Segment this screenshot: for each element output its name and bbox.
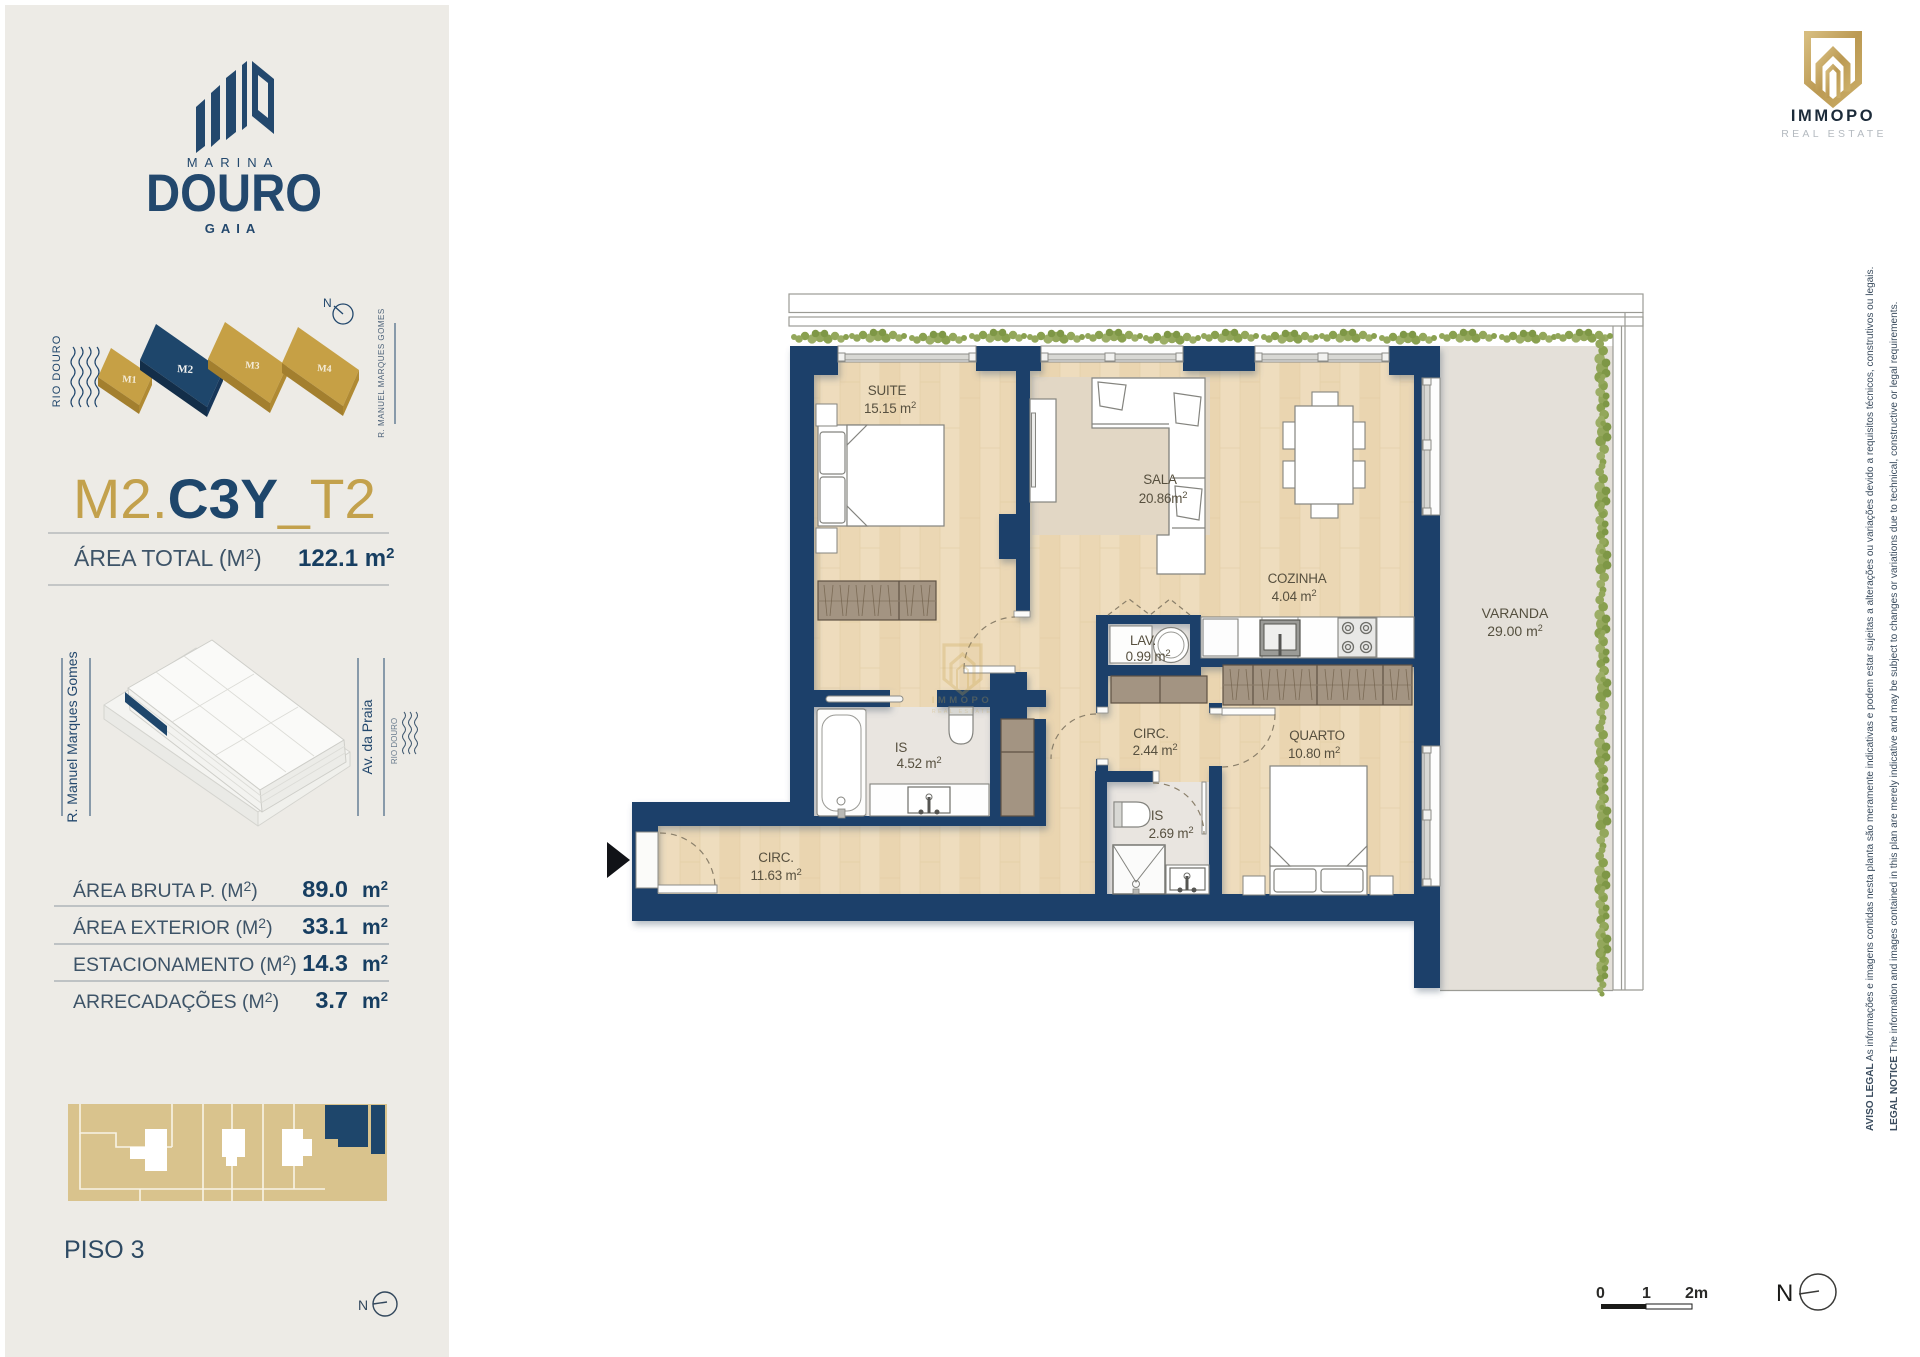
svg-text:11.63 m2: 11.63 m2 <box>750 867 801 883</box>
svg-text:QUARTO: QUARTO <box>1289 728 1345 743</box>
svg-text:4.04 m2: 4.04 m2 <box>1272 588 1317 604</box>
svg-text:3.7: 3.7 <box>315 987 348 1013</box>
svg-text:m2: m2 <box>362 915 388 939</box>
svg-text:M2: M2 <box>177 363 194 376</box>
svg-text:N: N <box>1776 1280 1793 1307</box>
svg-text:1: 1 <box>1642 1285 1651 1302</box>
svg-text:2.69 m2: 2.69 m2 <box>1149 825 1194 841</box>
svg-text:N: N <box>358 1297 368 1313</box>
svg-text:ESTACIONAMENTO (M2): ESTACIONAMENTO (M2) <box>73 952 297 976</box>
svg-text:m2: m2 <box>362 952 388 976</box>
svg-text:R. MANUEL MARQUES GOMES: R. MANUEL MARQUES GOMES <box>377 308 386 437</box>
svg-text:89.0: 89.0 <box>302 876 348 902</box>
svg-text:RIO DOURO: RIO DOURO <box>390 718 399 764</box>
svg-text:SALA: SALA <box>1143 472 1177 487</box>
svg-text:GAIA: GAIA <box>205 221 262 236</box>
svg-text:IS: IS <box>895 740 908 755</box>
svg-text:CIRC.: CIRC. <box>758 850 793 865</box>
svg-text:R. Manuel Marques Gomes: R. Manuel Marques Gomes <box>64 651 80 822</box>
svg-text:COZINHA: COZINHA <box>1268 571 1327 586</box>
svg-text:122.1 m2: 122.1 m2 <box>298 545 394 572</box>
svg-text:REAL ESTATE: REAL ESTATE <box>1781 128 1887 140</box>
svg-text:VARANDA: VARANDA <box>1482 605 1549 621</box>
svg-text:Av. da Praia: Av. da Praia <box>359 699 375 774</box>
svg-text:m2: m2 <box>362 878 388 902</box>
svg-text:14.3: 14.3 <box>302 950 348 976</box>
svg-text:0: 0 <box>1596 1285 1605 1302</box>
svg-text:2.44 m2: 2.44 m2 <box>1133 742 1178 758</box>
svg-text:10.80 m2: 10.80 m2 <box>1288 745 1340 761</box>
svg-text:ÁREA BRUTA P. (M2): ÁREA BRUTA P. (M2) <box>73 878 258 902</box>
svg-text:CIRC.: CIRC. <box>1133 726 1168 741</box>
svg-text:15.15 m2: 15.15 m2 <box>864 400 916 416</box>
svg-text:LAV.: LAV. <box>1130 633 1156 648</box>
svg-text:M3: M3 <box>245 360 260 372</box>
svg-text:IMMOPO: IMMOPO <box>1791 107 1875 125</box>
svg-text:29.00 m2: 29.00 m2 <box>1487 623 1543 639</box>
svg-text:m2: m2 <box>362 989 388 1013</box>
svg-text:4.52 m2: 4.52 m2 <box>897 755 942 771</box>
svg-text:PISO 3: PISO 3 <box>64 1236 145 1264</box>
svg-text:0.99 m2: 0.99 m2 <box>1126 648 1171 664</box>
svg-text:M1: M1 <box>122 374 137 386</box>
svg-text:IS: IS <box>1151 808 1164 823</box>
svg-text:M2.C3Y_T2: M2.C3Y_T2 <box>73 467 376 530</box>
svg-text:20.86m2: 20.86m2 <box>1139 490 1188 506</box>
svg-text:RIO DOURO: RIO DOURO <box>51 335 63 408</box>
svg-text:M4: M4 <box>317 363 332 375</box>
svg-text:REAL ESTATE: REAL ESTATE <box>932 709 992 715</box>
svg-text:ÁREA EXTERIOR (M2): ÁREA EXTERIOR (M2) <box>73 915 273 939</box>
svg-text:33.1: 33.1 <box>302 913 348 939</box>
svg-text:IMMOPO: IMMOPO <box>932 695 993 706</box>
svg-text:ÁREA TOTAL (M2): ÁREA TOTAL (M2) <box>74 545 262 571</box>
svg-text:SUITE: SUITE <box>868 383 907 398</box>
svg-text:2m: 2m <box>1685 1285 1708 1302</box>
svg-text:ARRECADAÇÕES (M2): ARRECADAÇÕES (M2) <box>73 989 279 1013</box>
svg-text:N: N <box>323 296 332 310</box>
svg-text:DOURO: DOURO <box>146 164 322 223</box>
